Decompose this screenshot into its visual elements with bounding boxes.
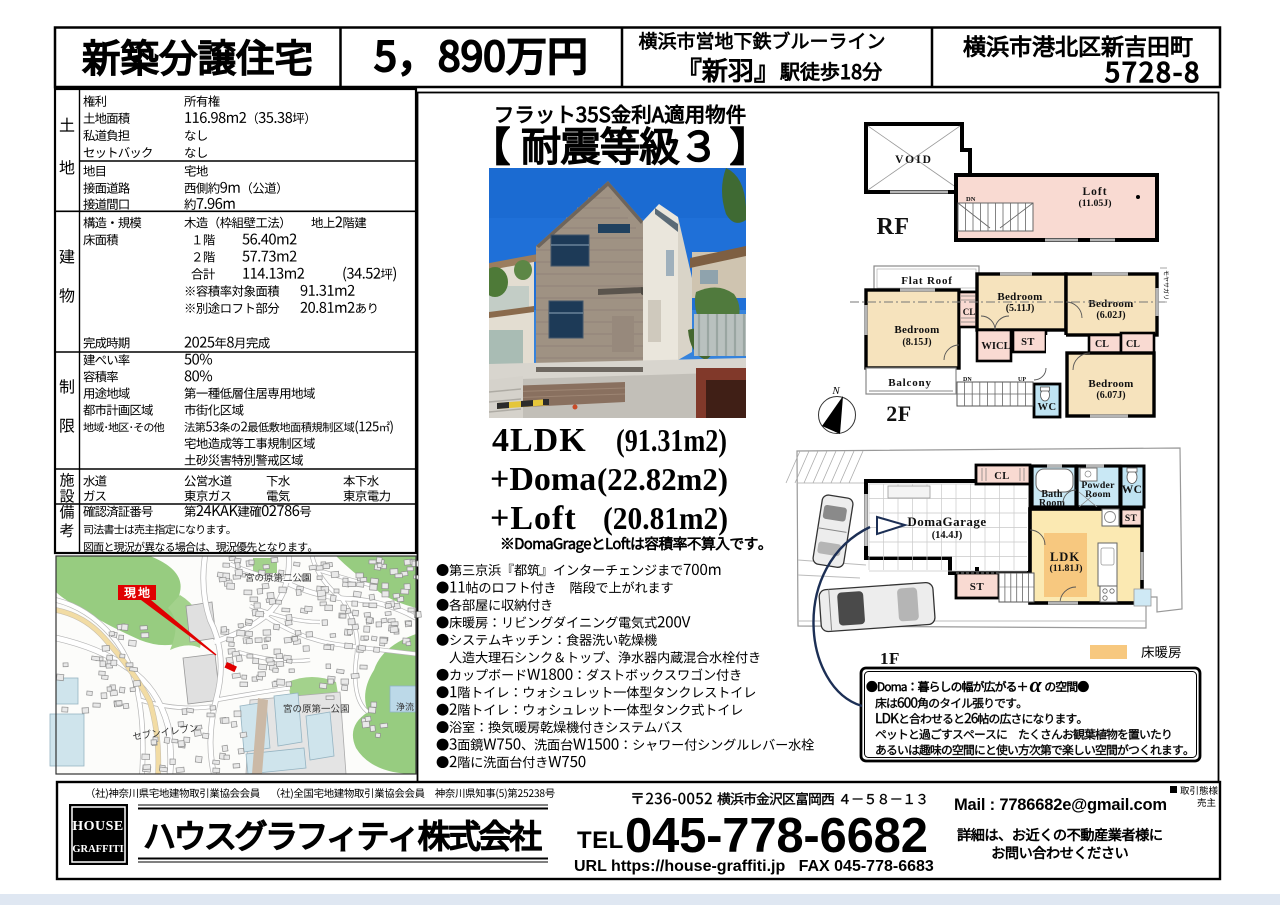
svg-text:(20.81m2): (20.81m2) <box>603 500 728 536</box>
svg-text:Room: Room <box>1085 489 1111 500</box>
svg-text:N: N <box>831 385 840 397</box>
svg-text:CL: CL <box>1095 339 1109 350</box>
svg-text:WICL: WICL <box>981 341 1010 352</box>
svg-text:Loft: Loft <box>1082 186 1107 198</box>
svg-text:CL: CL <box>994 471 1010 482</box>
svg-text:+Doma: +Doma <box>490 461 596 498</box>
svg-text:(5.11J): (5.11J) <box>1006 303 1035 314</box>
svg-text:DN: DN <box>966 196 976 203</box>
svg-text:(22.82m2): (22.82m2) <box>597 461 728 497</box>
svg-text:CL: CL <box>963 307 976 317</box>
svg-text:ST: ST <box>1021 337 1035 348</box>
svg-text:GRAFFITI: GRAFFITI <box>72 844 123 855</box>
svg-text:+Loft: +Loft <box>490 500 577 537</box>
svg-text:045-778-6682: 045-778-6682 <box>625 809 928 863</box>
svg-text:(11.81J): (11.81J) <box>1050 563 1083 574</box>
svg-text:Bedroom: Bedroom <box>997 291 1042 303</box>
svg-text:(6.02J): (6.02J) <box>1096 310 1125 321</box>
svg-text:RF: RF <box>877 214 910 240</box>
svg-text:(11.05J): (11.05J) <box>1079 198 1112 209</box>
svg-text:4LDK: 4LDK <box>492 422 587 459</box>
svg-text:(6.07J): (6.07J) <box>1096 390 1125 401</box>
svg-text:α: α <box>1029 672 1042 697</box>
svg-text:CL: CL <box>1126 339 1140 350</box>
svg-text:Balcony: Balcony <box>888 377 932 389</box>
svg-text:UP: UP <box>1018 377 1026 383</box>
svg-text:DN: DN <box>963 377 972 383</box>
svg-text:Mail : 7786682e@gmail.com: Mail : 7786682e@gmail.com <box>954 796 1167 814</box>
svg-text:VOID: VOID <box>895 154 933 166</box>
svg-text:WC: WC <box>1037 402 1056 413</box>
svg-text:LDK: LDK <box>1050 550 1080 564</box>
svg-text:HOUSE: HOUSE <box>72 819 124 834</box>
svg-text:(8.15J): (8.15J) <box>902 337 931 348</box>
svg-text:URL https://house-graffiti.jp: URL https://house-graffiti.jp FAX 045-77… <box>574 858 934 875</box>
svg-text:TEL: TEL <box>577 827 624 854</box>
svg-text:ST: ST <box>970 581 985 593</box>
svg-text:ST: ST <box>1125 514 1138 524</box>
svg-text:(91.31m2): (91.31m2) <box>616 422 727 458</box>
svg-text:2F: 2F <box>886 401 911 426</box>
svg-text:DomaGarage: DomaGarage <box>907 514 986 529</box>
svg-text:1F: 1F <box>880 649 900 668</box>
svg-text:WC: WC <box>1122 484 1142 496</box>
svg-text:Bedroom: Bedroom <box>1088 378 1133 390</box>
svg-text:(14.4J): (14.4J) <box>932 530 963 541</box>
svg-text:Bedroom: Bedroom <box>1088 298 1133 310</box>
svg-text:Bedroom: Bedroom <box>894 324 939 336</box>
svg-text:Flat Roof: Flat Roof <box>901 275 953 287</box>
